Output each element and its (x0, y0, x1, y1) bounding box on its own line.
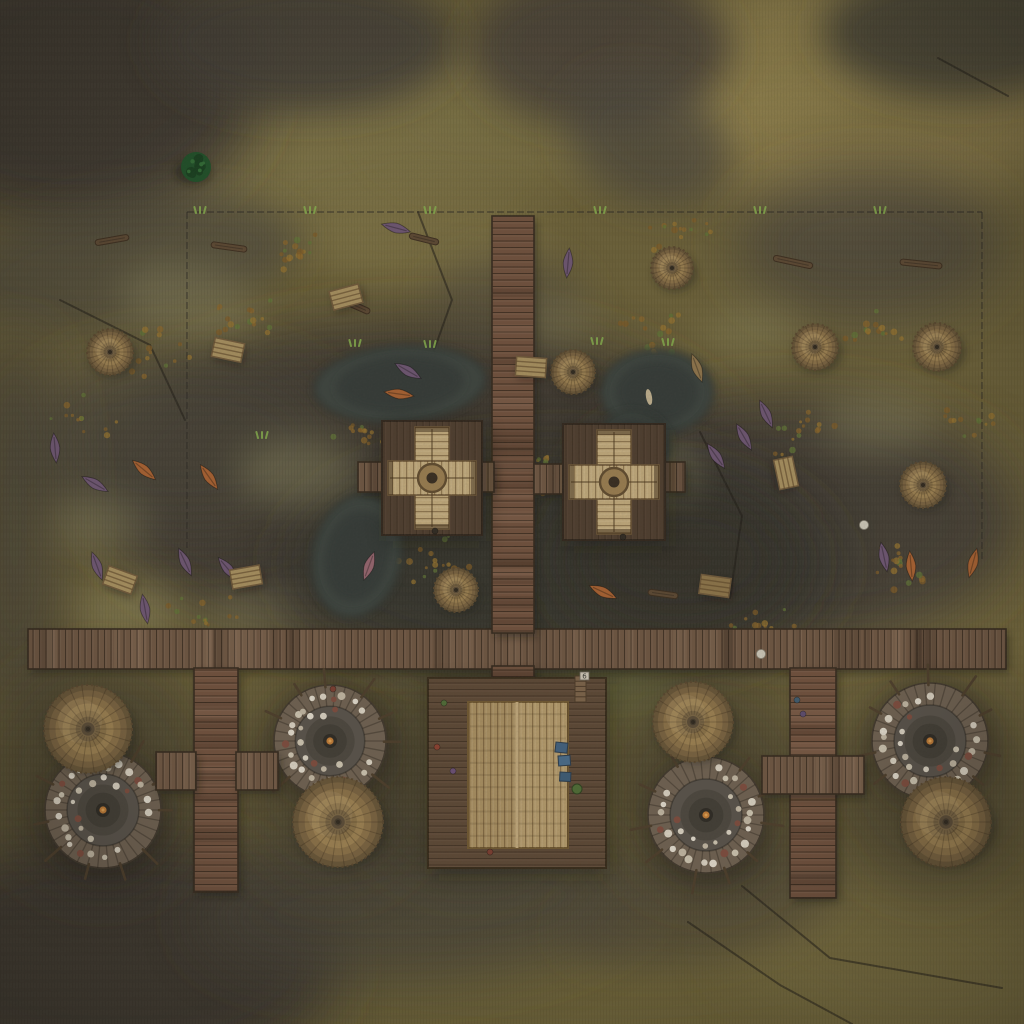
film-grain (0, 0, 1024, 1024)
battle-map[interactable]: 6 (0, 0, 1024, 1024)
battle-map-canvas: 6 (0, 0, 1024, 1024)
